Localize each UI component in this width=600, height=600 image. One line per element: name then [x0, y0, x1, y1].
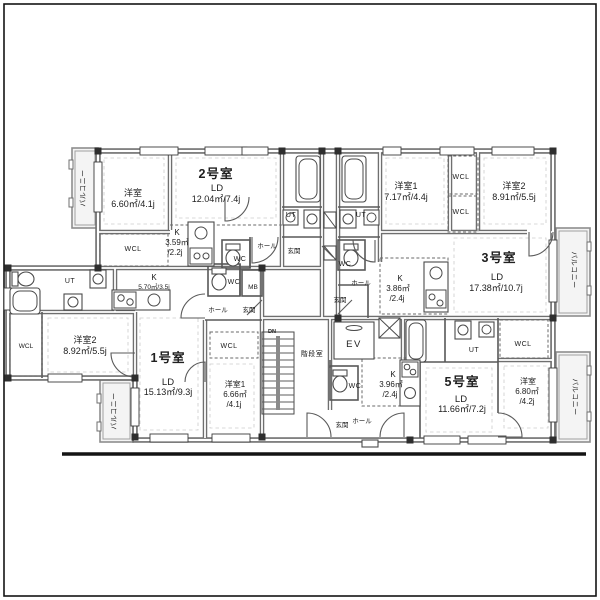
unit2-wcl-label: WCL: [124, 246, 141, 253]
floor-plan: 2号室 LD 12.04㎡/7.4j 洋室 6.60㎡/4.1j K 3.59㎡…: [0, 0, 600, 600]
unit1-hall-label: ホール: [208, 306, 228, 314]
unit1-bed1-label: 洋室1: [225, 379, 246, 389]
unit1-title: 1号室: [151, 350, 186, 365]
stair-room-label: 階段室: [301, 349, 324, 358]
unit3-k-label: K: [397, 274, 403, 283]
elevator-label: EV: [346, 339, 362, 350]
unit2-k-label: K: [174, 228, 180, 237]
unit5-bed-area: 6.80㎡: [515, 387, 539, 396]
unit1-ut-label: UT: [65, 278, 76, 285]
unit3-bed2-label: 洋室2: [502, 180, 525, 191]
unit3-ld-label: LD: [491, 272, 503, 283]
unit1-mb-label: MB: [248, 284, 258, 291]
balcony-unit5-label: バルコニー: [571, 378, 579, 415]
unit2-ld-area: 12.04㎡/7.4j: [192, 194, 241, 204]
unit1-k-label: K: [151, 273, 157, 282]
unit5-ut-label: UT: [469, 347, 480, 354]
unit1-wcl-left-label: WCL: [19, 343, 34, 350]
unit5-bed-label: 洋室: [520, 376, 536, 386]
unit3-k-area2: /2.4j: [389, 294, 404, 303]
floor-plan-canvas: 2号室 LD 12.04㎡/7.4j 洋室 6.60㎡/4.1j K 3.59㎡…: [0, 0, 600, 600]
unit2-entrance-label: 玄関: [288, 246, 301, 255]
unit3-bed2-area: 8.91㎡/5.5j: [492, 192, 536, 202]
unit2-ut-label: UT: [286, 212, 297, 219]
unit3-ut-label: UT: [356, 212, 367, 219]
unit5-entrance-label: 玄関: [336, 420, 349, 429]
unit5-ld-area: 11.66㎡/7.2j: [438, 404, 486, 414]
unit5-title: 5号室: [445, 374, 480, 389]
unit1-bed1-area: 6.66㎡: [223, 390, 247, 399]
unit2-hall-label: ホール: [257, 242, 277, 250]
unit1-wcl-center-label: WCL: [220, 343, 237, 350]
unit5-k-area: 3.96㎡: [379, 380, 403, 389]
unit3-title: 3号室: [482, 250, 517, 265]
unit2-k-area: 3.59㎡: [165, 238, 189, 247]
unit5-bed-area2: /4.2j: [519, 397, 534, 406]
unit3-ld-area: 17.38㎡/10.7j: [469, 283, 523, 293]
balcony-unit1-label: バルコニー: [110, 392, 118, 429]
utility-shaft: [324, 212, 336, 260]
unit5-k-label: K: [390, 370, 396, 379]
pipe-shaft: [379, 318, 400, 338]
unit3-wc-label: WC: [339, 261, 352, 268]
unit2-title: 2号室: [199, 166, 234, 181]
unit1-bed2-area: 8.92㎡/5.5j: [63, 346, 107, 356]
unit2-ld-label: LD: [211, 183, 223, 194]
balcony-unit2-label: バルコニー: [79, 169, 87, 206]
unit5-wc-label: WC: [349, 383, 362, 390]
staircase: [262, 332, 294, 414]
unit1-k-area: 5.70㎡/3.5j: [138, 282, 169, 291]
unit1-bed2-label: 洋室2: [73, 334, 96, 345]
unit3-bed1-label: 洋室1: [394, 180, 417, 191]
balcony-unit3-label: バルコニー: [570, 251, 578, 288]
unit1-ld-area: 15.13㎡/9.3j: [144, 387, 193, 397]
unit3-bed1-area: 7.17㎡/4.4j: [384, 192, 428, 202]
unit3-wcl1-label: WCL: [452, 174, 469, 181]
unit3-hall-label: ホール: [351, 279, 371, 287]
unit3-entrance-label: 玄関: [334, 295, 347, 304]
unit1-entrance-label: 玄関: [243, 305, 256, 314]
unit3-wcl2-label: WCL: [452, 209, 469, 216]
unit5-wcl-label: WCL: [514, 341, 531, 348]
unit2-bed-area: 6.60㎡/4.1j: [111, 199, 155, 209]
unit5-hall-label: ホール: [352, 417, 372, 425]
unit2-wc-label: WC: [234, 256, 247, 263]
unit1-wc-label: WC: [228, 279, 241, 286]
unit5-k-area2: /2.4j: [382, 390, 397, 399]
unit3-k-area: 3.86㎡: [386, 284, 410, 293]
image-frame: [4, 4, 596, 596]
unit1-bed1-area2: /4.1j: [226, 400, 241, 409]
down-label: DN: [268, 329, 276, 335]
unit2-k-area2: /2.2j: [167, 248, 182, 257]
entry-step: [362, 440, 378, 447]
unit2-bed-label: 洋室: [124, 187, 142, 198]
